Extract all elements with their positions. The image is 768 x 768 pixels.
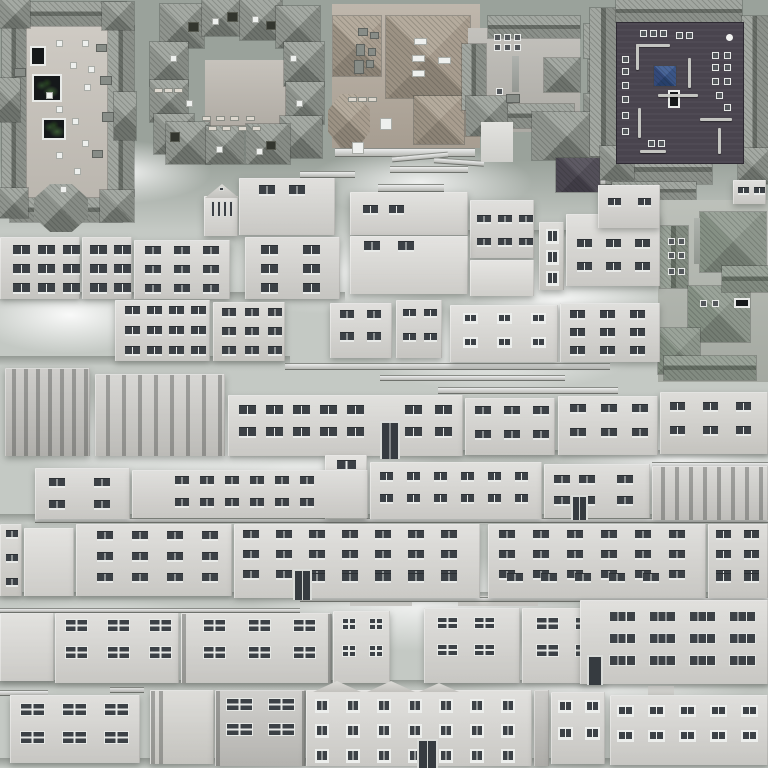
window	[38, 264, 55, 275]
roof-pipe	[638, 108, 641, 138]
door-cap	[648, 686, 674, 695]
roof-d-walkway	[512, 56, 519, 92]
facade-blank	[24, 528, 74, 596]
window	[340, 310, 354, 320]
window	[303, 264, 320, 275]
skylight	[170, 55, 177, 62]
window	[245, 346, 259, 356]
ac-unit	[102, 112, 114, 122]
door	[380, 421, 400, 459]
window	[375, 530, 391, 540]
window	[744, 530, 759, 540]
window	[649, 655, 676, 666]
roof-b-wing	[284, 42, 324, 86]
window	[585, 700, 600, 713]
roof-e-glass-pyramid	[654, 66, 676, 86]
skylight	[70, 62, 77, 69]
window	[716, 550, 731, 560]
ac-unit	[358, 28, 368, 36]
facade-blank	[0, 613, 54, 681]
window	[191, 306, 206, 316]
facade-narrow	[0, 524, 22, 596]
roof-vent	[676, 32, 683, 39]
skylight	[414, 38, 427, 45]
window	[167, 531, 183, 541]
window	[519, 238, 533, 247]
ac-unit	[368, 48, 376, 56]
window	[670, 402, 685, 412]
window	[710, 730, 727, 742]
roof-pipe	[640, 150, 666, 153]
window	[519, 215, 533, 224]
skylight	[438, 57, 451, 64]
window	[533, 550, 549, 560]
roof-table	[368, 97, 377, 102]
window	[94, 500, 110, 510]
skylight	[290, 55, 297, 62]
window	[268, 723, 295, 736]
window	[541, 573, 557, 583]
facade-blank	[470, 260, 534, 296]
roof-vent	[504, 44, 511, 51]
facade-pilaster-wall	[5, 368, 90, 456]
roof-table	[154, 88, 163, 93]
window	[367, 310, 381, 320]
window	[315, 724, 329, 738]
window	[710, 705, 727, 717]
roof-table	[208, 126, 217, 131]
facade-small	[733, 180, 766, 204]
window	[638, 198, 651, 207]
door	[587, 655, 603, 685]
roof-vent	[658, 140, 665, 147]
window	[293, 427, 310, 438]
window	[62, 731, 87, 744]
window	[114, 245, 131, 256]
window	[648, 730, 665, 742]
window	[149, 619, 172, 632]
window	[200, 476, 214, 486]
window	[579, 475, 595, 485]
window	[570, 404, 586, 414]
roof-table	[202, 116, 211, 121]
roof-vent	[668, 238, 675, 245]
window	[437, 617, 458, 629]
roof-b-wing	[166, 122, 210, 164]
roof-table	[164, 88, 173, 93]
window	[408, 573, 424, 583]
window	[744, 550, 759, 560]
roof-dark-wedge	[556, 158, 600, 192]
window	[174, 265, 190, 275]
window	[398, 241, 414, 252]
window	[729, 655, 756, 666]
facade-grouped	[424, 608, 520, 683]
window	[320, 405, 337, 416]
facade-blank	[150, 690, 214, 764]
facade	[558, 396, 658, 455]
roof-vent	[622, 112, 629, 119]
window	[147, 306, 162, 316]
window	[617, 475, 633, 485]
roof-f-hip	[722, 266, 768, 292]
door	[571, 495, 588, 520]
window	[289, 185, 305, 196]
roof-vent	[712, 52, 719, 59]
window	[342, 645, 356, 657]
window	[488, 472, 501, 482]
window	[609, 655, 636, 666]
window	[601, 428, 617, 438]
window	[567, 530, 583, 540]
roof-a-courtyard	[30, 46, 46, 66]
facade-long	[370, 462, 542, 519]
facade-framed	[450, 305, 558, 362]
window	[606, 239, 621, 249]
facade-grouped	[10, 695, 140, 763]
roof-pipe	[636, 44, 639, 70]
window	[649, 611, 676, 622]
roof-vent	[724, 104, 731, 111]
roof-table	[246, 116, 255, 121]
facade	[330, 303, 392, 358]
chimney	[170, 132, 180, 142]
pilaster	[138, 375, 142, 456]
roof-table	[174, 88, 183, 93]
window	[570, 328, 585, 338]
window	[609, 611, 636, 622]
window	[293, 405, 310, 416]
wall-fragment	[481, 122, 513, 162]
window	[408, 724, 422, 738]
window	[63, 245, 80, 256]
window	[20, 731, 45, 744]
roof-vent	[712, 300, 719, 307]
roof-vent	[724, 78, 731, 85]
window	[689, 633, 716, 644]
window	[558, 727, 573, 740]
window	[309, 530, 325, 540]
window	[741, 730, 758, 742]
window	[219, 187, 224, 191]
ac-unit	[370, 32, 379, 39]
roof-vent	[640, 30, 647, 37]
skylight	[56, 106, 63, 113]
window	[435, 405, 452, 416]
window	[600, 310, 615, 320]
roof-a-wing	[0, 0, 30, 28]
window	[570, 428, 586, 438]
pilaster	[84, 369, 88, 456]
roof-trim-strip	[300, 171, 355, 178]
window	[377, 724, 391, 738]
door	[417, 739, 438, 768]
skylight	[56, 152, 63, 159]
window	[293, 646, 316, 659]
facade-3story	[213, 302, 285, 361]
roof-pipe	[700, 118, 732, 121]
window	[239, 427, 256, 438]
roof-vent	[622, 82, 629, 89]
facade-4story-door	[234, 524, 480, 598]
window	[167, 573, 183, 583]
roof-a-wing	[0, 78, 20, 122]
window	[630, 310, 645, 320]
window	[309, 550, 325, 560]
window	[736, 426, 751, 436]
window	[536, 644, 559, 657]
window	[132, 531, 148, 541]
window	[463, 337, 478, 348]
window	[107, 619, 130, 632]
roof-vent	[716, 92, 723, 99]
window	[63, 283, 80, 294]
window	[649, 633, 676, 644]
ac-unit	[506, 94, 520, 103]
window	[275, 476, 289, 486]
skylight	[46, 92, 53, 99]
roof-vent	[622, 96, 629, 103]
window	[498, 238, 512, 247]
facade	[239, 178, 335, 235]
pilaster	[72, 369, 76, 456]
window	[703, 426, 718, 436]
roof-c-pyramid	[414, 96, 464, 144]
window	[303, 245, 320, 256]
window	[202, 573, 218, 583]
window	[679, 730, 696, 742]
window	[424, 333, 437, 342]
pilaster	[159, 691, 163, 764]
skylight	[212, 18, 219, 25]
skylight	[296, 100, 303, 107]
window	[546, 271, 559, 286]
window	[575, 573, 591, 583]
window	[90, 283, 107, 294]
skylight	[186, 100, 193, 107]
window	[648, 705, 665, 717]
window	[347, 427, 364, 438]
facade-long	[132, 470, 368, 518]
window	[434, 494, 447, 504]
facade	[350, 192, 468, 235]
window	[268, 327, 282, 337]
roof-e-hip	[590, 8, 618, 156]
roof-table	[252, 126, 261, 131]
roof-pipe	[718, 128, 721, 154]
window	[276, 530, 292, 540]
window	[536, 617, 559, 630]
window	[407, 472, 420, 482]
roof-f-walkway	[694, 218, 700, 264]
pilaster	[328, 614, 332, 683]
roof-vent	[504, 34, 511, 41]
window	[601, 530, 617, 540]
window	[754, 187, 765, 195]
facade-classical	[306, 690, 532, 766]
window	[225, 476, 239, 486]
pilaster	[218, 375, 222, 456]
window	[405, 427, 422, 438]
window	[424, 309, 437, 318]
facade-narrow-tower	[539, 222, 564, 290]
window	[554, 496, 570, 506]
window	[259, 185, 275, 196]
roof-f-pyramid	[700, 212, 766, 272]
pilaster	[106, 375, 110, 456]
facade-pilaster	[534, 690, 549, 766]
window	[145, 284, 161, 294]
window	[266, 405, 283, 416]
ac-unit	[96, 44, 107, 52]
roof-f-hatch-box	[734, 298, 750, 308]
window	[632, 428, 648, 438]
window	[248, 646, 271, 659]
skylight	[256, 148, 263, 155]
chimney	[188, 22, 199, 32]
facade-gable-house	[204, 196, 238, 236]
pilaster	[703, 467, 707, 520]
facade-3story	[115, 300, 210, 361]
window	[635, 550, 651, 560]
facade	[350, 236, 468, 294]
window	[470, 699, 484, 713]
ac-unit	[92, 150, 103, 158]
window	[145, 246, 161, 256]
window	[670, 426, 685, 436]
window	[679, 705, 696, 717]
window	[501, 699, 515, 713]
window	[475, 406, 491, 416]
roof-vent	[494, 34, 501, 41]
window	[531, 313, 546, 324]
window	[243, 530, 259, 540]
window	[380, 472, 393, 482]
roof-vent	[648, 140, 655, 147]
window	[346, 724, 360, 738]
window	[191, 346, 206, 356]
skylight	[82, 140, 89, 147]
window	[531, 337, 546, 348]
window	[744, 573, 759, 583]
roof-d-wing	[544, 58, 580, 92]
roof-vent	[712, 78, 719, 85]
window	[104, 703, 129, 716]
window	[300, 476, 314, 486]
window	[145, 265, 161, 275]
window	[554, 475, 570, 485]
window	[533, 530, 549, 540]
facade-house-door	[544, 464, 650, 518]
window	[174, 246, 190, 256]
window	[147, 346, 162, 356]
window	[403, 309, 416, 318]
facade-house	[35, 468, 130, 519]
window	[497, 337, 512, 348]
window	[515, 472, 528, 482]
roof-vent	[496, 88, 503, 95]
pilaster	[48, 369, 52, 456]
window	[499, 530, 515, 540]
window	[507, 573, 523, 583]
window	[293, 619, 316, 632]
window	[635, 262, 650, 272]
skylight	[380, 118, 392, 130]
window	[169, 346, 184, 356]
roof-e-hip	[616, 0, 742, 22]
roof-vent	[724, 52, 731, 59]
window	[175, 498, 189, 508]
skylight	[216, 146, 223, 153]
roof-vent	[678, 268, 685, 275]
window	[6, 578, 18, 587]
pilaster	[182, 614, 186, 683]
window	[125, 346, 140, 356]
window	[461, 494, 474, 504]
window	[497, 313, 512, 324]
roof-a-wing	[0, 188, 28, 218]
window	[434, 472, 447, 482]
window	[609, 633, 636, 644]
roof-pipe	[658, 94, 698, 97]
window	[97, 552, 113, 562]
window	[347, 405, 364, 416]
window	[501, 749, 515, 763]
roof-pipe	[688, 58, 691, 88]
roof-a-wing	[102, 2, 134, 30]
window	[617, 730, 634, 742]
window	[441, 573, 457, 583]
window	[367, 332, 381, 342]
window	[439, 724, 453, 738]
window	[533, 430, 549, 440]
window	[13, 264, 30, 275]
window	[463, 313, 478, 324]
ac-unit	[366, 60, 374, 68]
window	[477, 215, 491, 224]
pilaster	[759, 467, 763, 520]
window	[132, 573, 148, 583]
window	[211, 201, 215, 217]
window	[504, 430, 520, 440]
window	[243, 550, 259, 560]
facade	[465, 398, 555, 455]
ac-unit	[14, 68, 26, 77]
pilaster	[60, 369, 64, 456]
window	[20, 703, 45, 716]
window	[226, 723, 253, 736]
window	[149, 646, 172, 659]
window	[558, 700, 573, 713]
window	[104, 731, 129, 744]
window	[475, 430, 491, 440]
window	[222, 327, 236, 337]
roof-vent	[622, 128, 629, 135]
window	[203, 246, 219, 256]
window	[90, 245, 107, 256]
window	[268, 346, 282, 356]
window	[223, 201, 227, 217]
roof-e-hatch-box	[668, 90, 680, 108]
window	[222, 346, 236, 356]
roof-vent	[686, 32, 693, 39]
roof-e-dark-panel	[616, 22, 744, 164]
window	[741, 705, 758, 717]
window	[729, 633, 756, 644]
pilaster	[216, 691, 220, 766]
roof-a-wing	[100, 190, 134, 222]
window	[617, 496, 633, 506]
